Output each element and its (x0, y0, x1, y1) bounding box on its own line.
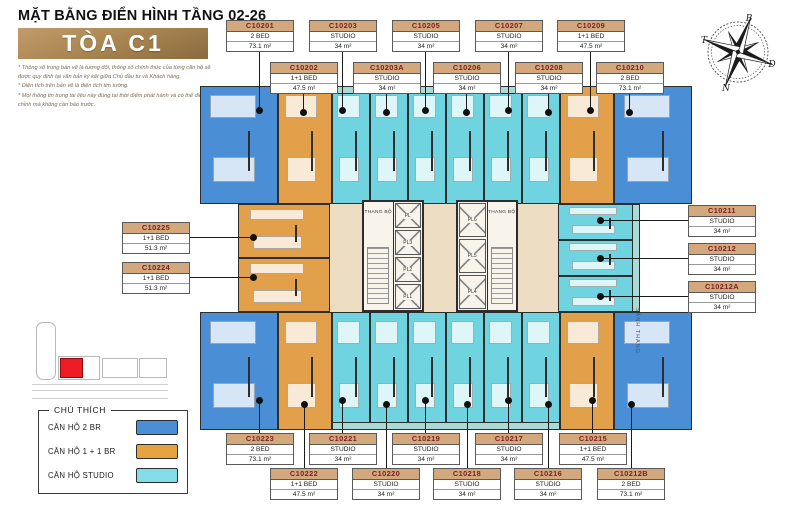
unit-C10208 (522, 86, 560, 204)
leader-line (425, 400, 426, 433)
leader-line (467, 404, 468, 468)
unit-callout-C10217: C10217STUDIO34 m² (475, 433, 543, 465)
key-plan-road (32, 384, 168, 385)
unit-callout-C10203: C10203STUDIO34 m² (309, 20, 377, 52)
unit-C10205 (408, 86, 446, 204)
unit-id: C10208 (516, 63, 582, 74)
lift-label: PL4 (467, 289, 478, 295)
lift-label: PL2 (402, 267, 413, 273)
unit-callout-C10206: C10206STUDIO34 m² (433, 62, 501, 94)
unit-area: 34 m² (689, 265, 755, 274)
leader-line (600, 258, 688, 259)
interior-wall (662, 131, 664, 170)
tower-badge: TÒA C1 (18, 28, 208, 59)
unit-type: 1+1 BED (271, 74, 337, 84)
unit-C10206 (446, 86, 484, 204)
stair-treads (367, 247, 389, 303)
unit-callout-C10219: C10219STUDIO34 m² (392, 433, 460, 465)
unit-area: 34 m² (476, 455, 542, 464)
unit-callout-C10205: C10205STUDIO34 m² (392, 20, 460, 52)
unit-area: 34 m² (353, 490, 419, 499)
unit-C10210 (614, 86, 692, 204)
furniture (337, 321, 360, 344)
furniture (569, 207, 617, 215)
unit-type: STUDIO (393, 445, 459, 455)
key-plan-building (36, 322, 56, 380)
leader-line (190, 237, 253, 238)
leader-dot (464, 401, 471, 408)
interior-wall (545, 131, 547, 170)
unit-type: 1+1 BED (123, 274, 189, 284)
interior-wall (393, 357, 395, 396)
unit-callout-C10208: C10208STUDIO34 m² (515, 62, 583, 94)
unit-callout-C10222: C102221+1 BED47.5 m² (270, 468, 338, 500)
interior-wall (311, 357, 313, 396)
unit-C10225 (238, 204, 330, 258)
unit-callout-C10215: C102151+1 BED47.5 m² (559, 433, 627, 465)
interior-wall (295, 279, 297, 297)
unit-callout-C10201: C102012 BED73.1 m² (226, 20, 294, 52)
unit-C10201 (200, 86, 278, 204)
leader-line (548, 404, 549, 468)
unit-C10221 (332, 312, 370, 430)
unit-id: C10207 (476, 21, 542, 32)
unit-callout-C10218: C10218STUDIO34 m² (433, 468, 501, 500)
unit-callout-C10212A: C10212ASTUDIO34 m² (688, 281, 756, 313)
unit-id: C10220 (353, 469, 419, 480)
furniture (375, 321, 398, 344)
interior-wall (393, 131, 395, 170)
leader-line (631, 404, 632, 468)
interior-wall (355, 131, 357, 170)
leader-line (592, 400, 593, 433)
leader-dot (589, 397, 596, 404)
lift-label: PL5 (467, 253, 478, 259)
unit-type: STUDIO (689, 293, 755, 303)
lift-cell: PL3 (395, 230, 422, 255)
interior-wall (593, 357, 595, 396)
unit-type: STUDIO (434, 480, 500, 490)
unit-area: 34 m² (310, 455, 376, 464)
unit-C10224 (238, 258, 330, 312)
unit-area: 34 m² (354, 84, 420, 93)
unit-callout-C10221: C10221STUDIO34 m² (309, 433, 377, 465)
leader-line (304, 404, 305, 468)
compass-north-label: B (745, 14, 753, 24)
unit-id: C10212A (689, 282, 755, 293)
lift-cell: PL1 (395, 284, 422, 309)
unit-type: STUDIO (515, 480, 581, 490)
unit-area: 34 m² (393, 455, 459, 464)
unit-id: C10209 (558, 21, 624, 32)
key-plan-building (139, 358, 167, 378)
lift-bank-left: PL PL3 PL2 PL1 (394, 202, 423, 310)
unit-type: 1+1 BED (558, 32, 624, 42)
unit-C10209 (560, 86, 614, 204)
leader-dot (256, 397, 263, 404)
unit-area: 73.1 m² (227, 42, 293, 51)
furniture (413, 321, 436, 344)
unit-id: C10224 (123, 263, 189, 274)
interior-wall (507, 357, 509, 396)
leader-line (508, 400, 509, 433)
interior-wall (311, 131, 313, 170)
unit-callout-C10225: C102251+1 BED51.3 m² (122, 222, 190, 254)
unit-type: STUDIO (354, 74, 420, 84)
unit-area: 34 m² (689, 303, 755, 312)
unit-id: C10217 (476, 434, 542, 445)
leader-dot (422, 107, 429, 114)
furniture (285, 321, 317, 344)
unit-id: C10206 (434, 63, 500, 74)
interior-wall (469, 131, 471, 170)
core-left: THANG BỘ PL PL3 PL2 PL1 (362, 200, 424, 312)
interior-wall (431, 357, 433, 396)
balcony-strip-bottom (332, 422, 560, 430)
interior-wall (545, 357, 547, 396)
unit-callout-C10209: C102091+1 BED47.5 m² (557, 20, 625, 52)
unit-callout-C10212B: C10212B2 BED73.1 m² (597, 468, 665, 500)
unit-C10223 (200, 312, 278, 430)
leader-dot (250, 234, 257, 241)
unit-type: STUDIO (393, 32, 459, 42)
unit-id: C10210 (597, 63, 663, 74)
unit-area: 47.5 m² (558, 42, 624, 51)
leader-dot (626, 109, 633, 116)
unit-area: 73.1 m² (598, 490, 664, 499)
unit-area: 34 m² (434, 490, 500, 499)
unit-id: C10215 (560, 434, 626, 445)
unit-id: C10212B (598, 469, 664, 480)
interior-wall (431, 131, 433, 170)
leader-line (342, 50, 343, 110)
interior-wall (469, 357, 471, 396)
leader-dot (587, 107, 594, 114)
leader-dot (300, 109, 307, 116)
furniture (567, 95, 599, 118)
interior-wall (507, 131, 509, 170)
furniture (489, 321, 512, 344)
unit-id: C10203A (354, 63, 420, 74)
leader-line (342, 400, 343, 433)
furniture (527, 321, 550, 344)
unit-C10222 (278, 312, 332, 430)
unit-callout-C10211: C10211STUDIO34 m² (688, 205, 756, 237)
furniture (451, 321, 474, 344)
unit-type: 1+1 BED (560, 445, 626, 455)
unit-area: 47.5 m² (560, 455, 626, 464)
leader-line (386, 404, 387, 468)
leader-dot (301, 401, 308, 408)
key-plan-road (32, 390, 168, 391)
key-plan-highlight-tower (60, 358, 83, 378)
note-line: * Thông số trong bản vẽ là tương đối, th… (18, 64, 218, 81)
leader-dot (339, 107, 346, 114)
interior-wall (248, 357, 250, 396)
note-line: * Diện tích trên bản vẽ là diện tích tim… (18, 82, 218, 91)
leader-dot (256, 107, 263, 114)
leader-dot (383, 401, 390, 408)
unit-area: 34 m² (516, 84, 582, 93)
unit-callout-C10223: C102232 BED73.1 m² (226, 433, 294, 465)
leader-dot (597, 217, 604, 224)
stairwell-label: THANG BỘ (364, 202, 393, 215)
leader-dot (597, 255, 604, 262)
unit-callout-C10212: C10212STUDIO34 m² (688, 243, 756, 275)
core-right: PL6 PL5 PL4 THANG BỘ (456, 200, 518, 312)
unit-callout-C10202: C102021+1 BED47.5 m² (270, 62, 338, 94)
furniture (210, 95, 256, 118)
unit-area: 34 m² (434, 84, 500, 93)
unit-type: STUDIO (310, 32, 376, 42)
leader-line (259, 400, 260, 433)
key-plan-road (32, 398, 168, 399)
lift-label: PL1 (402, 294, 413, 300)
legend-item-2br: CĂN HỘ 2 BR (48, 420, 178, 435)
leader-line (590, 50, 591, 110)
unit-area: 34 m² (310, 42, 376, 51)
interior-wall (355, 357, 357, 396)
legend-item-studio: CĂN HỘ STUDIO (48, 468, 178, 483)
leader-line (600, 296, 688, 297)
unit-id: C10219 (393, 434, 459, 445)
unit-area: 51.3 m² (123, 284, 189, 293)
leader-dot (505, 107, 512, 114)
unit-type: 2 BED (227, 32, 293, 42)
legend-swatch-studio (136, 468, 178, 483)
interior-wall (609, 254, 611, 266)
unit-id: C10225 (123, 223, 189, 234)
unit-type: STUDIO (689, 255, 755, 265)
legend-swatch-2br (136, 420, 178, 435)
unit-type: STUDIO (689, 217, 755, 227)
unit-area: 34 m² (393, 42, 459, 51)
unit-C10215 (560, 312, 614, 430)
unit-id: C10201 (227, 21, 293, 32)
legend-label: CĂN HỘ 1 + 1 BR (48, 447, 116, 456)
lift-cell: PL (395, 203, 422, 228)
unit-area: 51.3 m² (123, 244, 189, 253)
unit-C10202 (278, 86, 332, 204)
lift-cell: PL4 (459, 275, 486, 309)
compass-west-label: T (701, 36, 708, 46)
furniture (250, 209, 304, 220)
unit-type: 2 BED (598, 480, 664, 490)
lift-cell: PL6 (459, 203, 486, 237)
unit-C10203 (332, 86, 370, 204)
unit-id: C10205 (393, 21, 459, 32)
legend-label: CĂN HỘ STUDIO (48, 471, 114, 480)
unit-area: 47.5 m² (271, 84, 337, 93)
furniture (624, 321, 670, 344)
unit-C10216 (522, 312, 560, 430)
leader-dot (545, 109, 552, 116)
unit-callout-C10220: C10220STUDIO34 m² (352, 468, 420, 500)
unit-id: C10222 (271, 469, 337, 480)
leader-line (190, 277, 253, 278)
leader-dot (628, 401, 635, 408)
unit-callout-C10207: C10207STUDIO34 m² (475, 20, 543, 52)
unit-type: STUDIO (476, 445, 542, 455)
stairwell-left: THANG BỘ (364, 202, 394, 310)
key-plan-building (102, 358, 138, 378)
unit-C10207 (484, 86, 522, 204)
unit-id: C10218 (434, 469, 500, 480)
lift-bank-right: PL6 PL5 PL4 (458, 202, 488, 310)
unit-id: C10216 (515, 469, 581, 480)
compass-east-label: Đ (767, 60, 776, 70)
leader-dot (383, 109, 390, 116)
unit-id: C10221 (310, 434, 376, 445)
unit-type: STUDIO (476, 32, 542, 42)
stairwell-label: THANG BỘ (488, 202, 517, 215)
leader-dot (422, 397, 429, 404)
lift-label: PL6 (467, 217, 478, 223)
leader-dot (597, 293, 604, 300)
legend: CHÚ THÍCH CĂN HỘ 2 BR CĂN HỘ 1 + 1 BR CĂ… (38, 410, 188, 494)
unit-type: STUDIO (310, 445, 376, 455)
interior-wall (593, 131, 595, 170)
leader-line (508, 50, 509, 110)
unit-type: STUDIO (516, 74, 582, 84)
unit-C10203A (370, 86, 408, 204)
unit-id: C10202 (271, 63, 337, 74)
leader-dot (250, 274, 257, 281)
unit-id: C10212 (689, 244, 755, 255)
unit-callout-C10224: C102241+1 BED51.3 m² (122, 262, 190, 294)
unit-id: C10203 (310, 21, 376, 32)
leader-dot (505, 397, 512, 404)
leader-line (425, 50, 426, 110)
key-plan (30, 314, 170, 404)
unit-type: STUDIO (353, 480, 419, 490)
lift-cell: PL2 (395, 257, 422, 282)
unit-area: 47.5 m² (271, 490, 337, 499)
furniture (250, 263, 304, 274)
unit-area: 34 m² (476, 42, 542, 51)
legend-title: CHÚ THÍCH (49, 405, 111, 415)
unit-type: 1+1 BED (123, 234, 189, 244)
legend-label: CĂN HỘ 2 BR (48, 423, 101, 432)
lift-cell: PL5 (459, 239, 486, 273)
stair-treads (491, 247, 513, 303)
legend-swatch-1plus1 (136, 444, 178, 459)
unit-C10212B (614, 312, 692, 430)
leader-dot (463, 109, 470, 116)
unit-area: 34 m² (515, 490, 581, 499)
furniture (569, 243, 617, 251)
unit-C10220 (370, 312, 408, 430)
unit-area: 34 m² (689, 227, 755, 236)
unit-C10217 (484, 312, 522, 430)
leader-line (600, 220, 688, 221)
unit-callout-C10210: C102102 BED73.1 m² (596, 62, 664, 94)
leader-line (259, 50, 260, 110)
interior-wall (248, 131, 250, 170)
unit-type: 1+1 BED (271, 480, 337, 490)
disclaimer-notes: * Thông số trong bản vẽ là tương đối, th… (18, 64, 218, 110)
unit-area: 73.1 m² (597, 84, 663, 93)
leader-dot (339, 397, 346, 404)
unit-type: 2 BED (597, 74, 663, 84)
lift-label: PL3 (402, 240, 413, 246)
stairwell-right: THANG BỘ (488, 202, 517, 310)
legend-item-1plus1: CĂN HỘ 1 + 1 BR (48, 444, 178, 459)
lift-label: PL (404, 213, 412, 219)
furniture (210, 321, 256, 344)
compass-south-label: N (721, 84, 731, 94)
furniture (567, 321, 599, 344)
interior-wall (295, 225, 297, 243)
unit-type: 2 BED (227, 445, 293, 455)
unit-callout-C10203A: C10203ASTUDIO34 m² (353, 62, 421, 94)
compass-icon: B Đ N T (696, 10, 780, 94)
note-line: * Mọi thông tin trong tài liệu này đúng … (18, 92, 218, 109)
leader-dot (545, 401, 552, 408)
unit-C10219 (408, 312, 446, 430)
unit-callout-C10216: C10216STUDIO34 m² (514, 468, 582, 500)
lift-lobby-label: SẢNH THANG (634, 308, 640, 354)
unit-area: 73.1 m² (227, 455, 293, 464)
interior-wall (662, 357, 664, 396)
unit-id: C10223 (227, 434, 293, 445)
furniture (569, 279, 617, 287)
unit-type: STUDIO (434, 74, 500, 84)
unit-id: C10211 (689, 206, 755, 217)
unit-C10218 (446, 312, 484, 430)
